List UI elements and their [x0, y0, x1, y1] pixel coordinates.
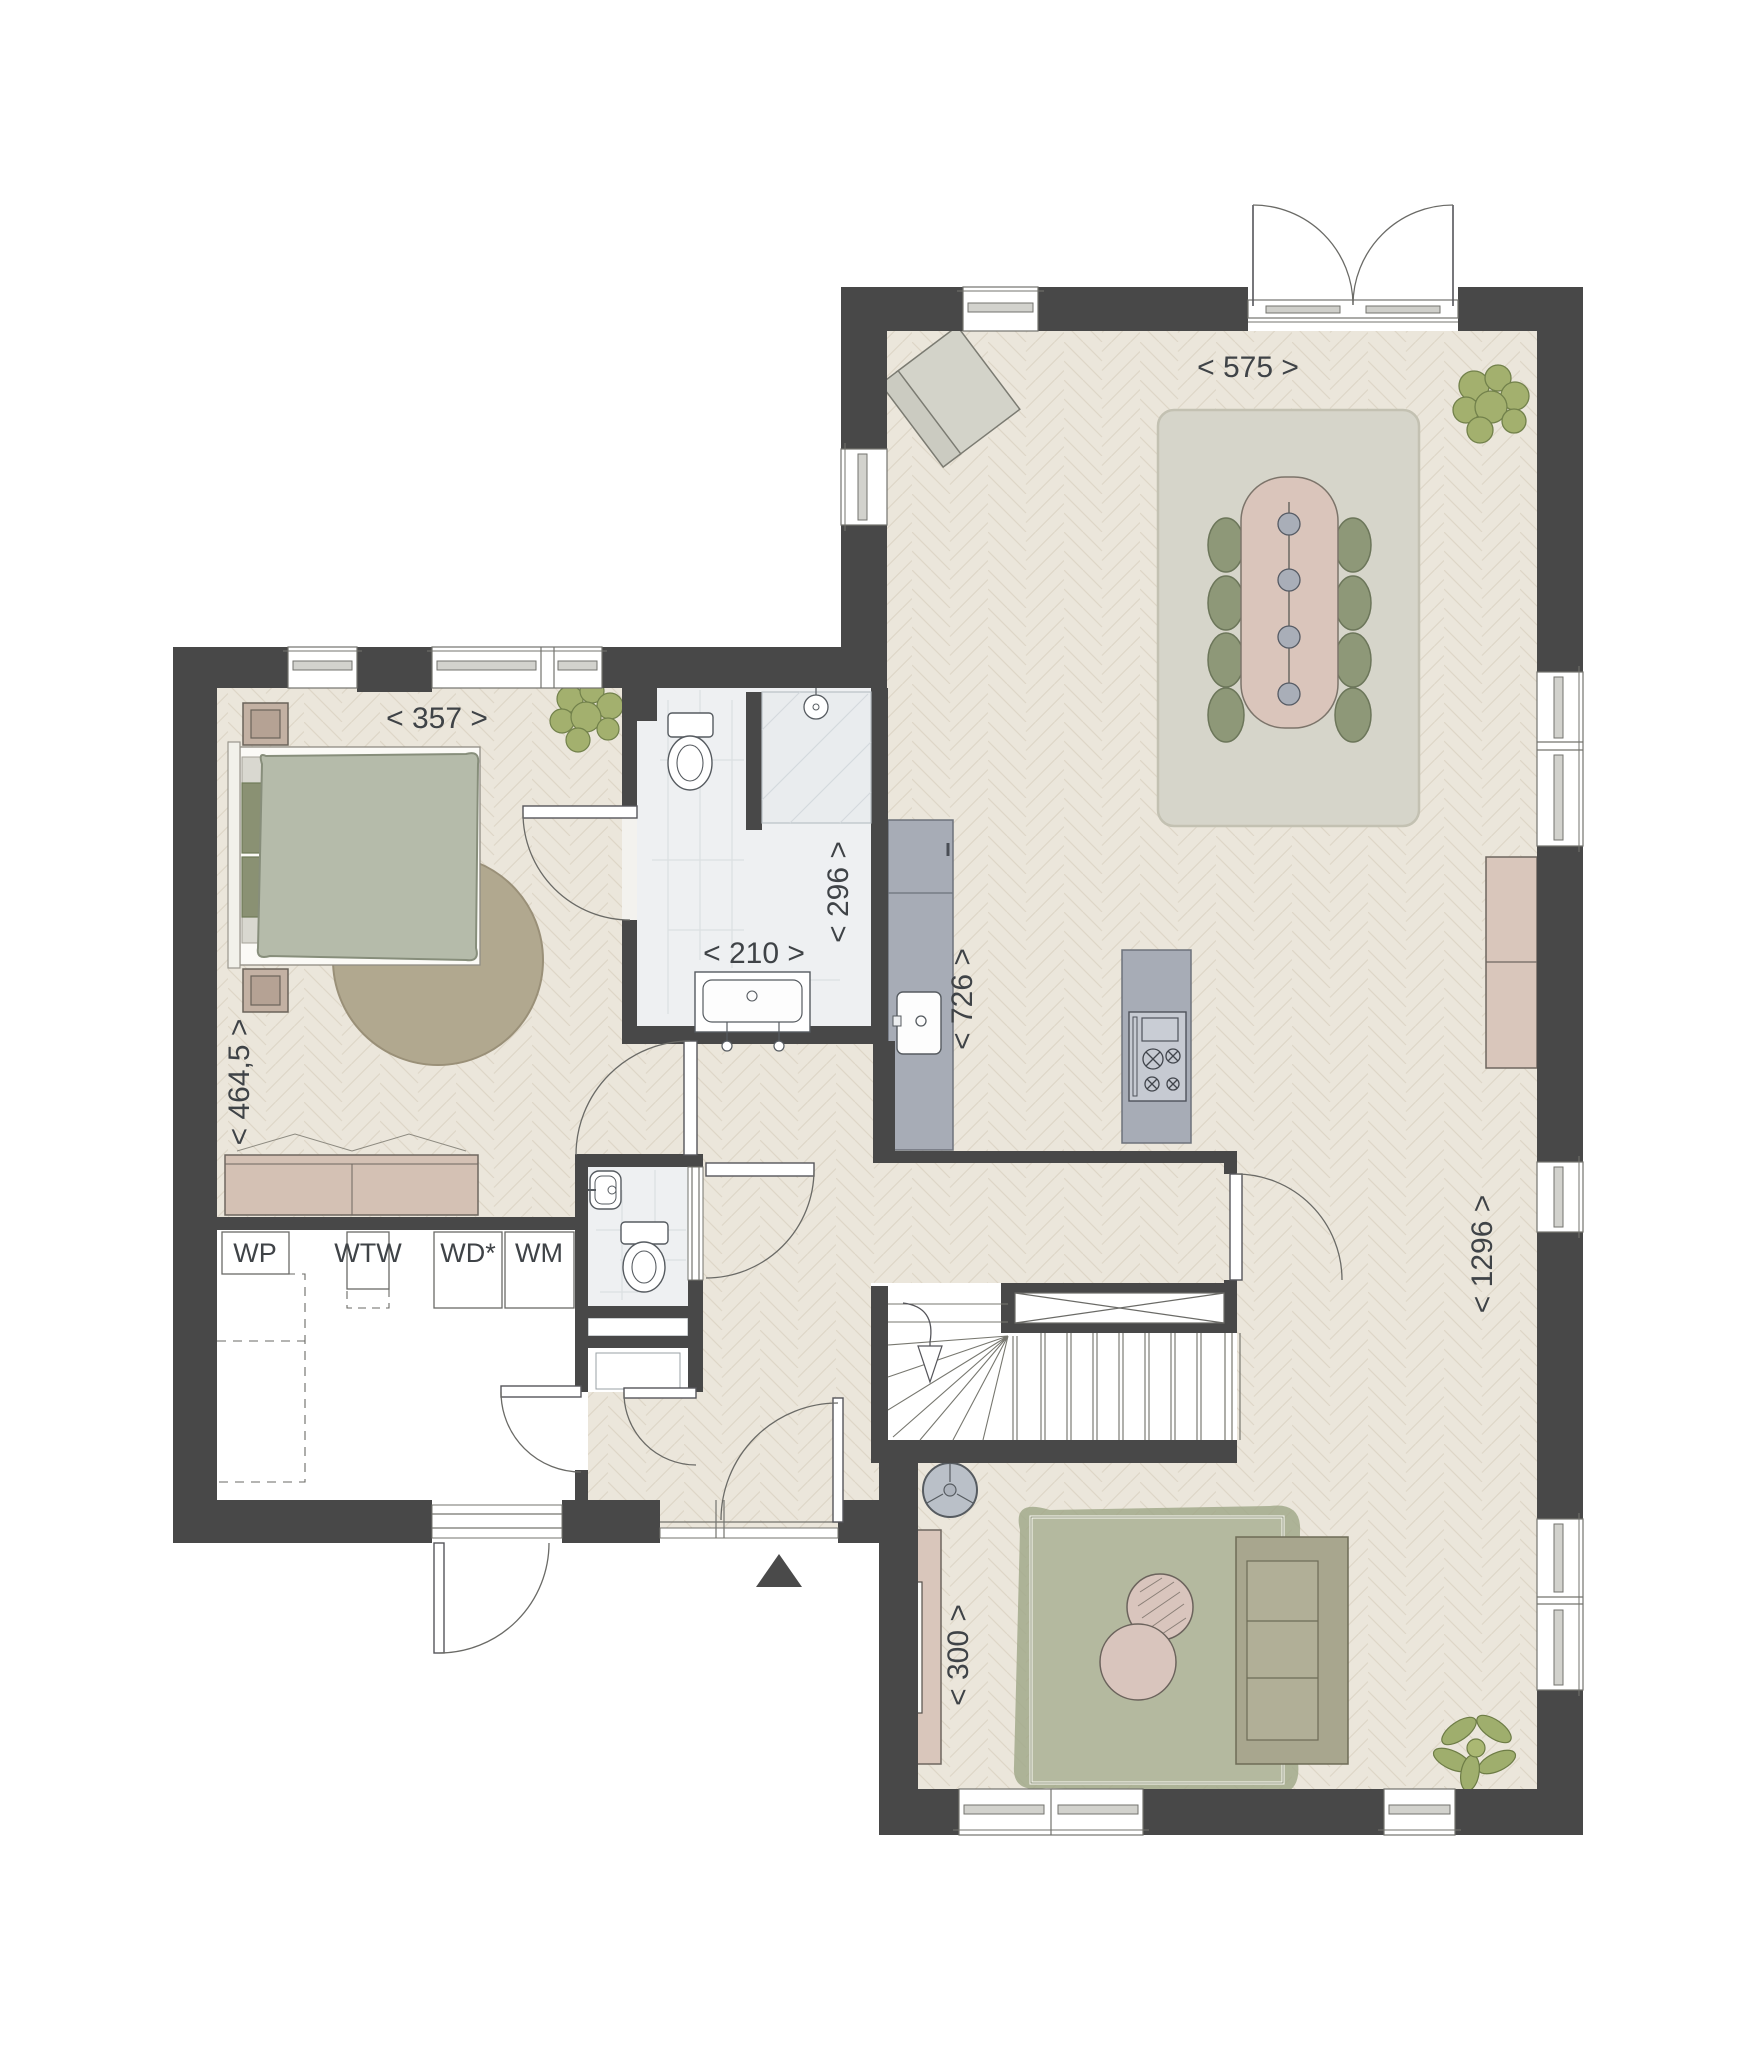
svg-text:WM: WM: [515, 1238, 563, 1268]
svg-text:< 300 >: < 300 >: [942, 1604, 975, 1706]
svg-text:< 726 >: < 726 >: [946, 948, 979, 1050]
svg-text:WP: WP: [233, 1238, 277, 1268]
svg-text:< 296 >: < 296 >: [822, 841, 855, 943]
svg-text:< 464,5 >: < 464,5 >: [223, 1019, 256, 1146]
svg-text:WTW: WTW: [334, 1238, 402, 1268]
svg-text:WD*: WD*: [440, 1238, 496, 1268]
svg-text:< 357 >: < 357 >: [386, 702, 488, 735]
svg-text:< 1296 >: < 1296 >: [1466, 1195, 1499, 1313]
svg-text:< 575 >: < 575 >: [1197, 351, 1299, 384]
svg-text:< 210 >: < 210 >: [703, 937, 805, 970]
